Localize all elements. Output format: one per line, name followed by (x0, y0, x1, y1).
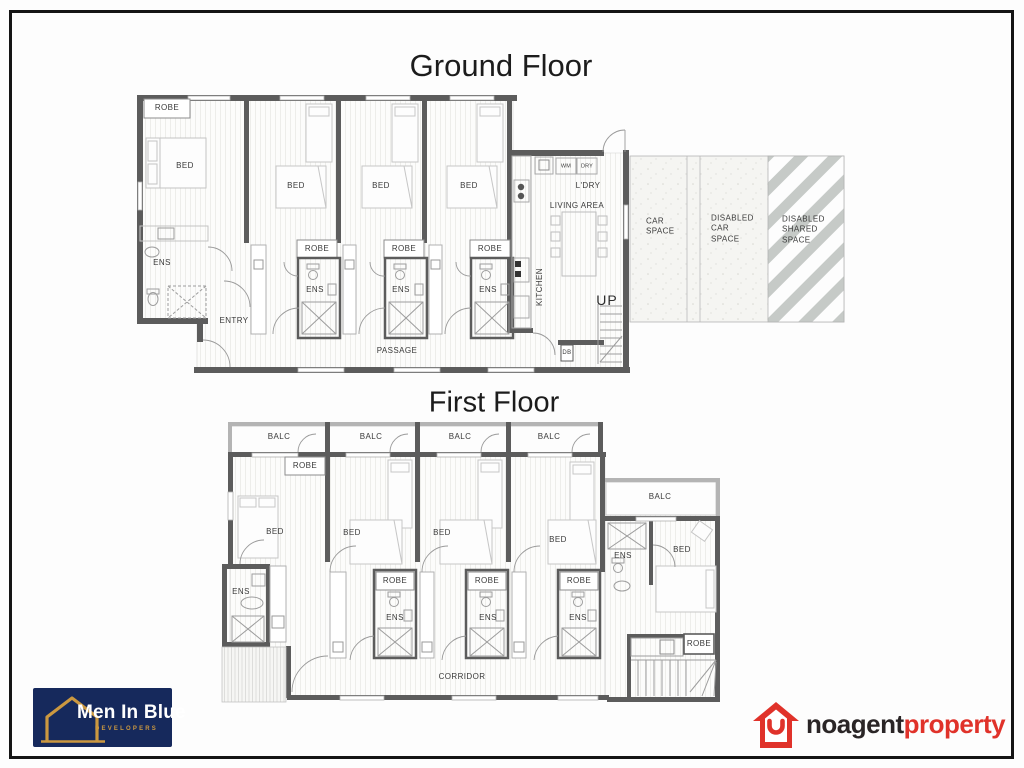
label-robe: ROBE (392, 244, 416, 254)
label-ens: ENS (153, 258, 171, 268)
label-bed: BED (433, 528, 451, 538)
label-robe: ROBE (305, 244, 329, 254)
label-bed: BED (266, 527, 284, 537)
label-bed: BED (343, 528, 361, 538)
label-balc: BALC (268, 432, 291, 442)
floorplan-drawing (0, 0, 1024, 768)
label-ens: ENS (614, 551, 632, 561)
label-ens: ENS (306, 285, 324, 295)
label-bed: BED (673, 545, 691, 555)
label-robe: ROBE (155, 103, 179, 113)
label-balc: BALC (649, 492, 672, 502)
label-bed: BED (549, 535, 567, 545)
label-kitchen: KITCHEN (535, 268, 545, 306)
first-floor-title: First Floor (429, 387, 560, 420)
noagent-word: noagent (806, 709, 904, 739)
floorplan-page: Ground Floor First Floor ROBE BED BED BE… (0, 0, 1024, 768)
house-smile-icon (752, 700, 800, 750)
label-wm: WM (561, 163, 571, 170)
label-balc: BALC (538, 432, 561, 442)
label-ens: ENS (569, 613, 587, 623)
label-robe: ROBE (567, 576, 591, 586)
noagent-property-logo: noagentproperty (752, 699, 1008, 749)
men-in-blue-name: Men In Blue (77, 702, 186, 724)
label-bed: BED (287, 181, 305, 191)
men-in-blue-tagline: DEVELOPERS (95, 726, 158, 732)
first-deck (222, 647, 286, 702)
label-bed: BED (460, 181, 478, 191)
label-car-space: CAR SPACE (646, 217, 675, 238)
label-ens: ENS (386, 613, 404, 623)
label-robe: ROBE (475, 576, 499, 586)
label-ens: ENS (479, 613, 497, 623)
label-corridor: CORRIDOR (439, 672, 486, 682)
label-robe: ROBE (478, 244, 502, 254)
label-up: UP (596, 291, 617, 309)
label-ens: ENS (232, 587, 250, 597)
men-in-blue-logo: Men In Blue DEVELOPERS (33, 688, 172, 747)
label-passage: PASSAGE (377, 346, 417, 356)
label-robe: ROBE (687, 639, 711, 649)
label-balc: BALC (449, 432, 472, 442)
label-db: DB (562, 350, 571, 358)
label-disabled-shared-space: DISABLED SHARED SPACE (782, 214, 825, 245)
label-bed: BED (176, 161, 194, 171)
label-bed: BED (372, 181, 390, 191)
label-disabled-car-space: DISABLED CAR SPACE (711, 213, 754, 244)
label-robe: ROBE (293, 461, 317, 471)
label-ens: ENS (392, 285, 410, 295)
ground-floor-title: Ground Floor (410, 48, 593, 84)
property-word: property (904, 709, 1005, 739)
label-entry: ENTRY (220, 316, 249, 326)
label-ens: ENS (479, 285, 497, 295)
label-robe: ROBE (383, 576, 407, 586)
label-laundry: L'DRY (576, 181, 601, 191)
label-living-area: LIVING AREA (550, 201, 604, 211)
label-balc: BALC (360, 432, 383, 442)
label-dry: DRY (581, 163, 593, 170)
